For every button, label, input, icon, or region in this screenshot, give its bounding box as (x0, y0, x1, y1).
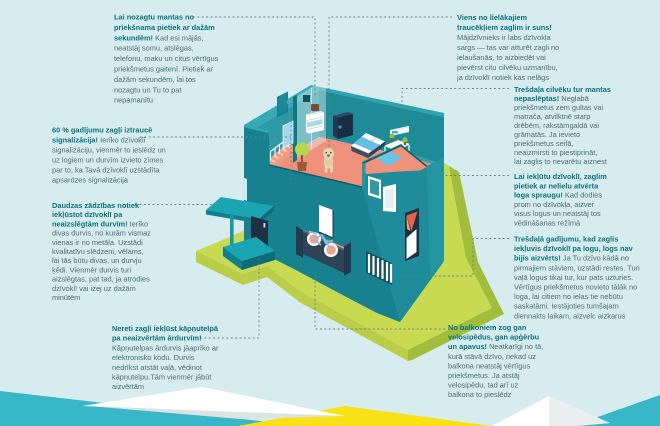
svg-text:ja dzīvoklī notiek kas nelāgs: ja dzīvoklī notiek kas nelāgs (456, 73, 549, 82)
svg-text:nozagtu un Tu to pat: nozagtu un Tu to pat (114, 85, 181, 94)
svg-text:Trešdaļā gadījumu, kad zaglis: Trešdaļā gadījumu, kad zaglis (514, 235, 618, 244)
svg-text:iekļuvis dzīvoklī pa logu, log: iekļuvis dzīvoklī pa logu, logs nav (514, 244, 634, 253)
svg-text:vēdināšanas režīmā: vēdināšanas režīmā (514, 219, 581, 228)
svg-text:matrača, atvilktnē starp: matrača, atvilktnē starp (514, 112, 590, 121)
svg-text:signalizācija! Ierīko dzīvoklī: signalizācija! Ierīko dzīvoklī (52, 136, 147, 145)
svg-text:diennakts laikam, aizvelc aizk: diennakts laikam, aizvelc aizkarus (514, 311, 626, 320)
svg-text:velosipēdus, gan apģērbu: velosipēdus, gan apģērbu (448, 333, 540, 342)
svg-text:neaizmirsti to piestiprināt,: neaizmirsti to piestiprināt, (514, 148, 597, 157)
svg-text:balkona to pieslēdz: balkona to pieslēdz (448, 390, 512, 399)
svg-text:sekundēm! Kad esi mājās,: sekundēm! Kad esi mājās, (114, 33, 204, 42)
svg-text:priekšmetus seifā,: priekšmetus seifā, (514, 139, 574, 148)
svg-text:Lai iekļūtu dzīvoklī, zaglim: Lai iekļūtu dzīvoklī, zaglim (514, 172, 607, 181)
svg-text:priekšmetus. Ja atstāj: priekšmetus. Ja atstāj (448, 371, 520, 380)
svg-text:priekšmetus gaitenī. Pietiek a: priekšmetus gaitenī. Pietiek ar (114, 65, 214, 74)
svg-text:kurā stāvā dzīvo, nekad uz: kurā stāvā dzīvo, nekad uz (448, 352, 536, 361)
svg-text:telefonu, maku un citus vērtīg: telefonu, maku un citus vērtīgus (114, 54, 219, 63)
svg-text:velosipēdu, tad arī uz: velosipēdu, tad arī uz (448, 381, 519, 390)
svg-text:60 % gadījumu zagļi iztraucē: 60 % gadījumu zagļi iztraucē (52, 126, 152, 135)
svg-text:traucēkļiem zaglim ir suns!: traucēkļiem zaglim ir suns! (457, 23, 552, 32)
svg-text:No balkoniem zog gan: No balkoniem zog gan (448, 323, 527, 332)
svg-text:signalizāciju, vienmēr to iesl: signalizāciju, vienmēr to ieslēdz un (52, 146, 166, 155)
svg-text:divas durvis, no kurām vismaz: divas durvis, no kurām vismaz (52, 229, 151, 238)
svg-text:dzīvoklī vai izej uz dažām: dzīvoklī vai izej uz dažām (52, 284, 136, 293)
svg-text:Lai nozagtu mantas no: Lai nozagtu mantas no (114, 13, 195, 22)
svg-text:aizslēgtas, pat tad, ja atrodi: aizslēgtas, pat tad, ja atrodies (52, 275, 150, 284)
svg-text:vienas ir no metāla. Uzstādi: vienas ir no metāla. Uzstādi (52, 238, 143, 247)
svg-text:pietiek ar nelielu atvērta: pietiek ar nelielu atvērta (514, 181, 599, 190)
svg-text:vaļā logus tikai tur, kur pats: vaļā logus tikai tur, kur pats uzturies. (514, 273, 633, 282)
svg-text:apsardzes signalizācija: apsardzes signalizācija (52, 176, 129, 185)
svg-text:Nereti zagļi iekļūst kāpņutelp: Nereti zagļi iekļūst kāpņutelpā (112, 324, 219, 333)
svg-text:nepaslēptas! Neglabā: nepaslēptas! Neglabā (514, 94, 590, 103)
svg-text:bijis aizvērts! Ja Tu dzīvo kā: bijis aizvērts! Ja Tu dzīvo kādā no (514, 254, 629, 263)
svg-text:minūtēm: minūtēm (52, 293, 80, 302)
svg-text:saskatāmi. Iestājoties tumšaja: saskatāmi. Iestājoties tumšajam (514, 302, 619, 311)
svg-text:pa neaizvērtām ārdurvīm!: pa neaizvērtām ārdurvīm! (112, 334, 202, 343)
svg-text:Kāpņutelpas ārdurvis jāaprīko: Kāpņutelpas ārdurvis jāaprīko ar (112, 343, 219, 352)
svg-text:nedrīkst atstāt vaļā, vēdinot: nedrīkst atstāt vaļā, vēdinot (112, 363, 202, 372)
svg-text:lai tās būtu divas, un durvju: lai tās būtu divas, un durvju (52, 256, 142, 265)
svg-text:visus logus un neatstāj tos: visus logus un neatstāj tos (514, 209, 601, 218)
svg-text:kvalitatīvu slēdzeni, vēlams,: kvalitatīvu slēdzeni, vēlams, (52, 247, 144, 256)
svg-text:Daudzas zādzības notiek: Daudzas zādzības notiek (52, 201, 140, 210)
svg-text:priekšnama pietiek ar dažām: priekšnama pietiek ar dažām (114, 23, 215, 32)
svg-text:elektronisko kodu. Durvis: elektronisko kodu. Durvis (112, 353, 195, 362)
svg-text:un apavus! Neatkarīgi no tā,: un apavus! Neatkarīgi no tā, (448, 342, 543, 351)
svg-text:uz logiem un durvīm izvieto zī: uz logiem un durvīm izvieto zīmes (52, 156, 164, 165)
svg-text:kāpņutelpu.Tām vienmēr jābūt: kāpņutelpu.Tām vienmēr jābūt (112, 373, 211, 382)
svg-text:par to, ka Tavā dzīvoklī uzstā: par to, ka Tavā dzīvoklī uzstādīta (52, 166, 160, 175)
svg-text:grāmatās. Ja ievieto: grāmatās. Ja ievieto (514, 130, 580, 139)
svg-text:loga spraugu! Kad dodies: loga spraugu! Kad dodies (514, 191, 602, 200)
svg-text:pirmajiem stāviem, uzstādi res: pirmajiem stāviem, uzstādi restes. Turi (514, 263, 640, 272)
svg-text:Viens no lielākajiem: Viens no lielākajiem (457, 13, 528, 22)
svg-text:iekļūstot dzīvoklī pa: iekļūstot dzīvoklī pa (52, 210, 123, 219)
svg-text:pievērst citu cilvēku uzmanību: pievērst citu cilvēku uzmanību, (457, 63, 558, 72)
svg-text:Mājdzīvnieks ir labs dzīvokļa: Mājdzīvnieks ir labs dzīvokļa (457, 33, 552, 42)
svg-text:Vērtīgus priekšmetus novieto t: Vērtīgus priekšmetus novieto tālāk no (514, 283, 637, 292)
svg-text:prom no dzīvokļa, aizver: prom no dzīvokļa, aizver (514, 200, 595, 209)
svg-text:neaizslēgtām durvīm! Ierīko: neaizslēgtām durvīm! Ierīko (52, 219, 148, 228)
svg-text:balkona neatstāj vērtīgus: balkona neatstāj vērtīgus (448, 361, 530, 370)
svg-text:nepamanītu: nepamanītu (114, 96, 153, 105)
svg-text:dažām sekundēm, lai tos: dažām sekundēm, lai tos (114, 75, 196, 84)
svg-text:lai zaglis to nevarētu aiznest: lai zaglis to nevarētu aiznest (514, 157, 607, 166)
svg-text:aizvērtām: aizvērtām (112, 382, 144, 391)
svg-text:loga, lai citiem no ielas tie: loga, lai citiem no ielas tie nebūtu (514, 292, 623, 301)
svg-text:sargs — tas var atturēt zagli: sargs — tas var atturēt zagli no (457, 43, 559, 52)
svg-text:neatstāj somu, atslēgas,: neatstāj somu, atslēgas, (114, 44, 194, 53)
svg-text:Trešdaļa cilvēku tur mantas: Trešdaļa cilvēku tur mantas (514, 85, 611, 94)
svg-text:ielaušanās, to aizbiedēt vai: ielaušanās, to aizbiedēt vai (457, 53, 546, 62)
svg-text:ķēdi. Vienmēr durvis turi: ķēdi. Vienmēr durvis turi (52, 265, 131, 274)
svg-text:priekšmetus zem gultas vai: priekšmetus zem gultas vai (514, 103, 603, 112)
svg-text:drēbēm, rakstāmgaldā vai: drēbēm, rakstāmgaldā vai (514, 121, 599, 130)
